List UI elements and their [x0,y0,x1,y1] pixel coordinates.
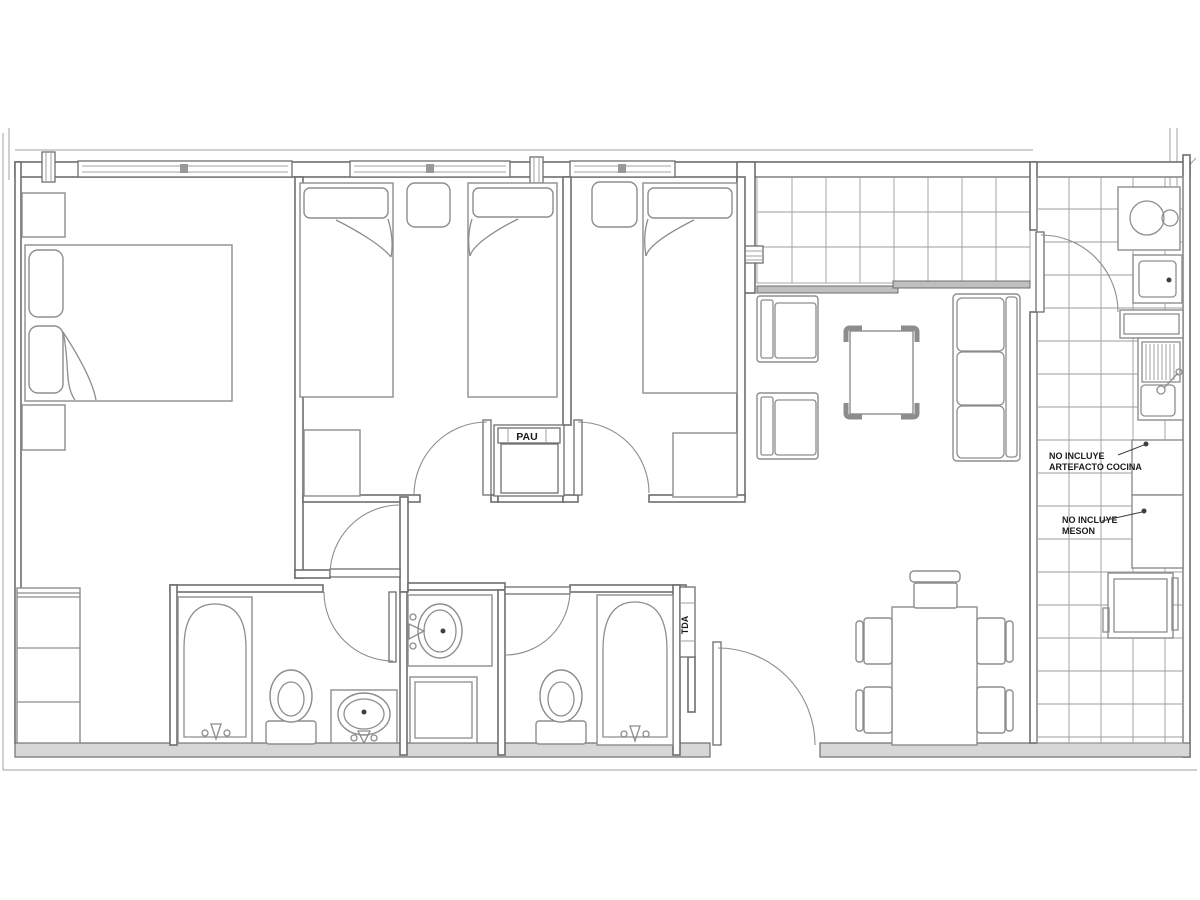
pillow [29,250,63,317]
pillow [473,188,553,217]
shower-duct [410,677,477,743]
wardrobe [17,588,80,743]
twin-bed [643,183,737,393]
bathroom1-door [324,592,396,662]
toilet [266,670,316,744]
nightstand [22,193,65,237]
counter-space-no-meson [1132,495,1183,568]
tda-label: TDA [680,615,690,634]
vanity-room [408,595,492,743]
armchair [757,296,818,362]
kitchen: NO INCLUYE ARTEFACTO COCINA NO INCLUYE M… [1030,162,1183,743]
floor-plan-page: NO INCLUYE ARTEFACTO COCINA NO INCLUYE M… [0,0,1200,900]
dining-chair [977,618,1013,664]
nightstand [22,405,65,450]
washing-machine [1118,187,1180,250]
counter-note-line2: MESON [1062,526,1095,536]
dresser [304,430,360,496]
dresser [673,433,737,497]
dining-chair [910,571,960,608]
sofa [953,294,1020,461]
bathroom2-door [505,587,570,655]
pillow [29,326,63,393]
pillow [304,188,388,218]
pau-label: PAU [516,431,537,443]
entrance-door [713,642,815,745]
bathtub [178,597,252,743]
dining-table [892,607,977,745]
toilet [536,670,586,744]
living-room [757,294,1020,461]
master-bedroom-door [330,505,400,577]
armchair [757,393,818,459]
refrigerator [1103,573,1178,638]
dining-area [856,571,1013,745]
sink-counter [408,595,492,666]
kitchen-counter [1120,310,1183,338]
window-bedroom2 [350,161,510,177]
coffee-table [846,328,917,417]
wall-pier [42,152,55,182]
dining-chair [856,687,892,733]
kitchen-note-line1: NO INCLUYE [1049,451,1105,461]
kitchen-note-line2: ARTEFACTO COCINA [1049,462,1142,472]
floor-plan: NO INCLUYE ARTEFACTO COCINA NO INCLUYE M… [0,0,1200,900]
window-master [78,161,292,177]
tda-panel: TDA [680,587,695,657]
pillow [648,188,732,218]
dining-chair [977,687,1013,733]
bathroom-1 [178,597,397,744]
twin-bed [300,183,393,397]
bedroom2-door [414,420,491,495]
sliding-door-panel [757,286,898,293]
windows [42,152,675,183]
sliding-door-panel [893,281,1030,288]
nightstand [407,183,450,227]
kitchen-sink [1138,338,1183,420]
kitchen-door [1036,232,1118,312]
twin-bed [468,183,557,397]
vanity-sink [331,690,397,743]
pau-closet: PAU [494,425,564,496]
bathtub [597,595,673,745]
nightstand [592,182,637,227]
counter-note-line1: NO INCLUYE [1062,515,1118,525]
dining-chair [856,618,892,664]
double-bed [25,245,232,401]
bedroom3-door [574,420,649,495]
bedroom-3 [592,182,737,497]
terrace [733,162,1030,293]
wall-pier [530,157,543,183]
bathroom-2 [536,595,673,745]
window-bedroom3 [570,161,675,177]
laundry-basin [1133,255,1182,303]
